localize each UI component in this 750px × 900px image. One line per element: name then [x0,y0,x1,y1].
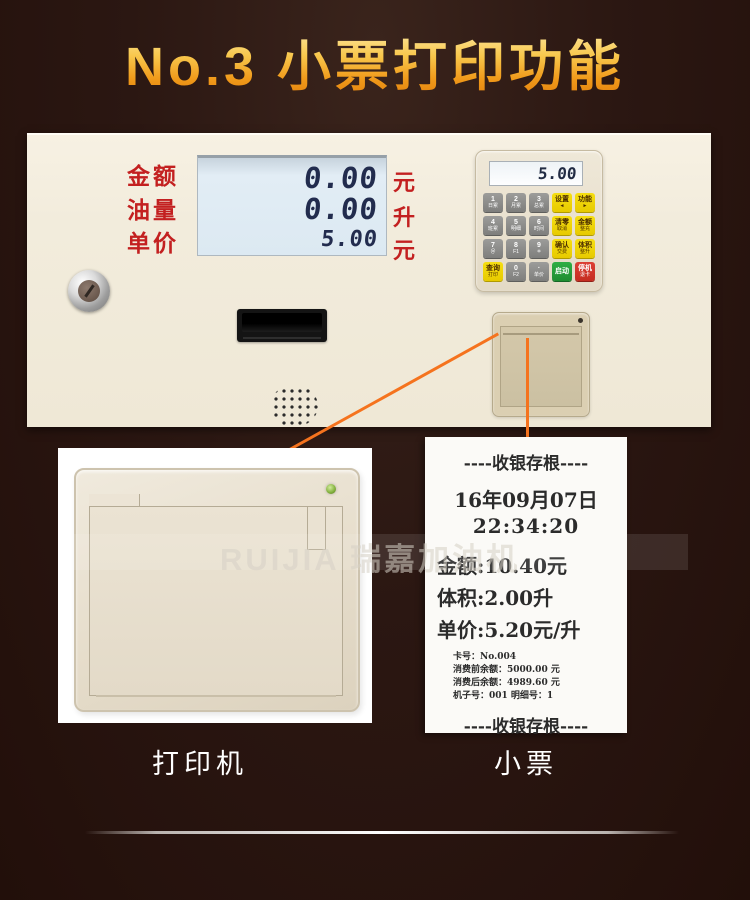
receipt-details: 卡号：No.004 消费前余额：5000.00 元 消费后余额：4989.60 … [425,651,627,703]
receipt-footer: ----收银存根---- [425,712,627,737]
printer-led-icon [578,318,583,323]
volume-unit: 升 [393,200,415,232]
key-main-label: 金额 [578,219,592,226]
keypad-key-dot[interactable]: ·单价 [529,262,549,281]
receipt-paper: ----收银存根---- 16年09月07日 22:34:20 金额:10.40… [425,437,627,733]
key-sub-label: 退卡 [580,273,590,278]
key-main-label: 清零 [555,219,569,226]
volume-value: 0.00 [302,192,379,226]
keypad-key-start[interactable]: 启动 [552,262,572,281]
page-title: No.3 小票打印功能 [0,22,750,101]
receipt-card-number: 卡号：No.004 [453,651,627,664]
keypad-key-8[interactable]: 8F1 [506,239,526,258]
printer-door [500,326,582,407]
key-sub-label: F1 [513,250,519,255]
amount-label: 金额 [127,157,179,191]
speaker-grille-icon [270,385,318,427]
keypad-panel: 5.00 1日累 2月累 3总累 设置◄ 功能► 4班累 5明细 6时间 清零取… [475,150,603,292]
printer-body [74,468,360,712]
receipt-date: 16年09月07日 [425,484,627,513]
key-main-label: 6 [537,219,541,226]
price-unit: 元 [393,233,415,265]
key-sub-label: ► [583,204,588,209]
main-lcd-display: 0.00 0.00 5.00 [197,155,387,256]
keypad-key-stop-eject[interactable]: 停机退卡 [575,262,595,281]
keypad-key-4[interactable]: 4班累 [483,216,503,235]
key-sub-label: 取消 [557,227,567,232]
volume-label: 油量 [127,191,179,225]
key-sub-label: ＠ [490,250,495,255]
key-main-label: 启动 [555,268,569,275]
key-main-label: 7 [491,242,495,249]
card-reader-slot[interactable] [237,309,327,342]
receipt-header: ----收银存根---- [425,437,627,474]
brand-watermark: RUIJIA 瑞嘉加油机 [220,534,520,579]
key-main-label: 4 [491,219,495,226]
key-sub-label: ＊ [536,250,541,255]
key-main-label: 9 [537,242,541,249]
key-sub-label: 交费 [557,250,567,255]
receipt-unit-price: 单价:5.20元/升 [425,614,627,643]
key-sub-label: 明细 [511,227,521,232]
receipt-balance-before: 消费前余额：5000.00 元 [453,664,627,677]
key-sub-label: 打印 [488,273,498,278]
key-sub-label: 时间 [534,227,544,232]
keypad-key-amount[interactable]: 金额整充 [575,216,595,235]
lock-cylinder-icon [78,280,100,302]
keypad-key-2[interactable]: 2月累 [506,193,526,212]
key-lock[interactable] [68,270,110,312]
keypad-key-3[interactable]: 3总累 [529,193,549,212]
key-sub-label: 整充 [580,227,590,232]
printer-power-led-icon [326,484,336,494]
key-main-label: 停机 [578,265,592,272]
key-main-label: 1 [491,196,495,203]
card-reader-base [243,337,321,339]
keypad-keys: 1日累 2月累 3总累 设置◄ 功能► 4班累 5明细 6时间 清零取消 金额整… [483,193,595,281]
keypad-key-9[interactable]: 9＊ [529,239,549,258]
key-sub-label: 总累 [534,204,544,209]
receipt-volume: 体积:2.00升 [425,582,627,611]
printer-bottom-seam [96,695,336,697]
dispenser-control-panel: 金额 油量 单价 0.00 0.00 5.00 元 升 元 5.00 1日累 2… [27,133,711,427]
key-main-label: 设置 [555,196,569,203]
card-slot-opening [242,313,322,332]
keypad-lcd-value: 5.00 [538,164,578,183]
key-main-label: 功能 [578,196,592,203]
key-sub-label: 班累 [488,227,498,232]
key-sub-label: 日累 [488,204,498,209]
receipt-caption: 小票 [494,742,558,781]
price-value: 5.00 [320,227,380,252]
keypad-key-confirm-pay[interactable]: 确认交费 [552,239,572,258]
key-main-label: 2 [514,196,518,203]
keypad-key-query-print[interactable]: 查询打印 [483,262,503,281]
keypad-key-1[interactable]: 1日累 [483,193,503,212]
printer-closeup-photo [58,448,372,723]
page: No.3 小票打印功能 金额 油量 单价 0.00 0.00 5.00 元 升 … [0,0,750,900]
keypad-key-7[interactable]: 7＠ [483,239,503,258]
key-main-label: 8 [514,242,518,249]
key-main-label: 3 [537,196,541,203]
keypad-key-clear-cancel[interactable]: 清零取消 [552,216,572,235]
key-main-label: 体积 [578,242,592,249]
keypad-lcd: 5.00 [489,161,583,186]
key-main-label: 0 [514,265,518,272]
keypad-key-6[interactable]: 6时间 [529,216,549,235]
key-sub-label: 月累 [511,204,521,209]
amount-unit: 元 [393,165,415,197]
receipt-machine-number: 机子号：001 明细号：1 [453,690,627,703]
key-main-label: 确认 [555,242,569,249]
amount-value: 0.00 [302,161,379,195]
receipt-balance-after: 消费后余额：4989.60 元 [453,677,627,690]
printer-caption: 打印机 [152,742,248,781]
divider-line [85,831,679,834]
keyhole-icon [84,284,94,297]
price-label: 单价 [127,224,179,258]
receipt-printer-module[interactable] [492,312,590,417]
paper-slot [503,333,579,335]
key-sub-label: ◄ [560,204,565,209]
key-main-label: 5 [514,219,518,226]
key-sub-label: F2 [513,273,519,278]
key-sub-label: 单价 [534,273,544,278]
key-sub-label: 整升 [580,250,590,255]
keypad-key-settings[interactable]: 设置◄ [552,193,572,212]
keypad-key-5[interactable]: 5明细 [506,216,526,235]
keypad-key-volume[interactable]: 体积整升 [575,239,595,258]
key-main-label: 查询 [486,265,500,272]
keypad-key-function[interactable]: 功能► [575,193,595,212]
keypad-key-0[interactable]: 0F2 [506,262,526,281]
key-main-label: · [538,265,540,272]
